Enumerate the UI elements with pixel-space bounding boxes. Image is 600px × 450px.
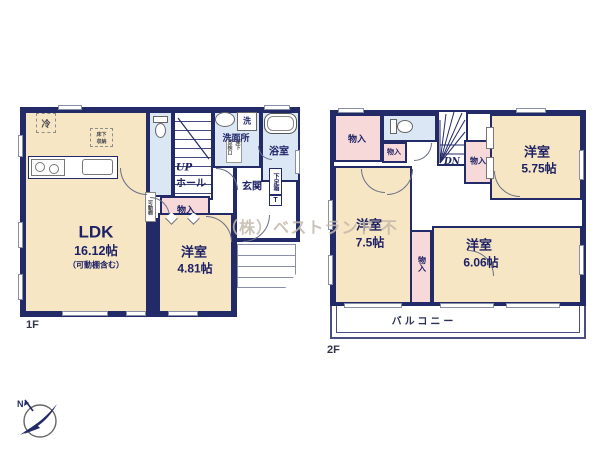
window xyxy=(18,274,23,300)
closet-door-mark xyxy=(486,127,494,149)
window xyxy=(58,105,82,110)
entrance-label: 玄関 xyxy=(242,181,262,192)
shoebox-t-box: T xyxy=(269,195,282,206)
toilet-bowl-icon xyxy=(397,120,413,133)
room-ldk xyxy=(24,111,148,313)
refrigerator-space: 冷 xyxy=(36,113,56,133)
hatch-label-right: 床下 xyxy=(235,140,242,162)
hatch-label-left: 点検口 xyxy=(227,140,234,162)
closet-2f-mid-label: 物入 xyxy=(417,256,426,272)
compass-n-label: N xyxy=(17,399,24,409)
yoshitsu-575-size: 5.75帖 xyxy=(521,162,556,175)
floor-label-2f: 2F xyxy=(327,344,340,356)
balcony-rail xyxy=(336,306,580,333)
closet-2f-topleft-label: 物入 xyxy=(348,134,366,144)
window xyxy=(62,311,108,316)
window xyxy=(264,105,290,110)
balcony xyxy=(330,306,586,339)
yoshitsu-75-size: 7.5帖 xyxy=(356,236,385,249)
bathtub-inner-icon xyxy=(267,116,294,131)
bathroom-label: 浴室 xyxy=(269,146,289,157)
shoebox: 下足箱 xyxy=(269,168,282,195)
ldk-size: 16.12帖 xyxy=(74,244,118,258)
shoebox-t-label: T xyxy=(273,197,277,204)
window xyxy=(328,255,333,285)
window xyxy=(506,303,560,308)
underfloor-storage-line2: 収納 xyxy=(96,138,106,145)
yoshitsu-1f-size: 4.81帖 xyxy=(177,262,212,275)
window xyxy=(440,303,494,308)
sink-icon xyxy=(82,159,113,175)
underfloor-storage: 床下 収納 xyxy=(90,128,113,147)
hall-label: ホール xyxy=(176,178,206,189)
balcony-label: バルコニー xyxy=(392,316,457,327)
toilet-tank-icon xyxy=(390,119,397,134)
window xyxy=(338,108,364,113)
floor-label-1f: 1F xyxy=(26,319,39,331)
yoshitsu-1f-name: 洋室 xyxy=(181,246,207,261)
window xyxy=(18,222,23,248)
porch-steps xyxy=(237,244,296,288)
toilet-bowl-icon xyxy=(155,123,166,138)
window xyxy=(126,311,146,316)
stairs-dn-label: DN xyxy=(444,157,460,167)
washer-label: 洗 xyxy=(243,118,251,127)
window xyxy=(579,245,584,275)
ldk-name: LDK xyxy=(79,222,114,241)
window xyxy=(344,303,402,308)
floor-plan-canvas: 冷 床下 収納 洗 点検口 床下 下足箱 T 可動棚 洗面所 浴室 玄関 xyxy=(0,0,600,450)
toilet-tank-icon xyxy=(153,116,168,123)
shoebox-label: 下足箱 xyxy=(271,173,280,191)
stove-burner-icon xyxy=(35,162,45,172)
window xyxy=(295,150,300,174)
window xyxy=(328,200,333,230)
closet-1f-label: 物入 xyxy=(177,205,195,215)
room-yoshitsu-606 xyxy=(432,226,582,304)
closet-2f-right-label: 物入 xyxy=(470,158,486,167)
window xyxy=(168,311,198,316)
wall xyxy=(146,218,158,315)
washbasin-icon xyxy=(215,112,235,127)
yoshitsu-75-name: 洋室 xyxy=(356,219,382,234)
yoshitsu-575-name: 洋室 xyxy=(524,146,550,161)
stove-burner-icon xyxy=(49,164,59,174)
washroom-label: 洗面所 xyxy=(222,133,249,143)
closet-2f-small-label: 物入 xyxy=(387,149,401,157)
underfloor-storage-line1: 床下 xyxy=(96,131,106,138)
ldk-note: （可動棚含む） xyxy=(68,262,124,271)
window xyxy=(18,135,23,157)
compass-north-icon: N xyxy=(10,390,66,446)
stairs-up-label: UP xyxy=(176,163,192,174)
window xyxy=(579,150,584,180)
yoshitsu-606-name: 洋室 xyxy=(466,239,492,254)
closet-door-mark xyxy=(486,157,494,179)
yoshitsu-606-size: 6.06帖 xyxy=(463,256,498,269)
window xyxy=(516,108,546,113)
